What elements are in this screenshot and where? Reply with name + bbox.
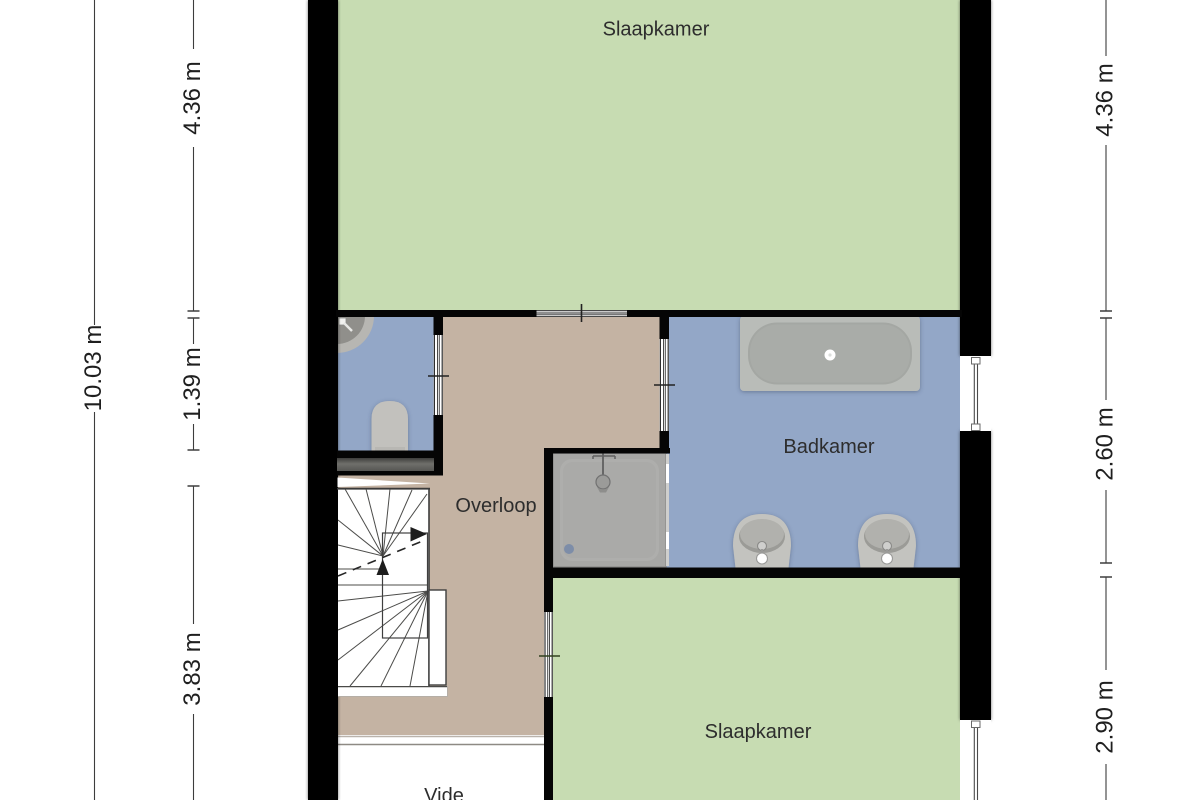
svg-text:2.90 m: 2.90 m [1091,680,1118,753]
svg-text:1.39 m: 1.39 m [179,347,206,420]
svg-text:4.36 m: 4.36 m [179,61,206,134]
svg-text:Overloop: Overloop [455,495,536,517]
svg-text:4.36 m: 4.36 m [1091,63,1118,136]
svg-text:10.03 m: 10.03 m [80,325,107,412]
svg-text:Vide: Vide [424,785,464,800]
svg-text:Slaapkamer: Slaapkamer [603,19,710,41]
svg-text:Badkamer: Badkamer [783,436,874,458]
svg-text:Slaapkamer: Slaapkamer [705,721,812,743]
svg-text:3.83 m: 3.83 m [179,632,206,705]
svg-text:2.60 m: 2.60 m [1091,407,1118,480]
